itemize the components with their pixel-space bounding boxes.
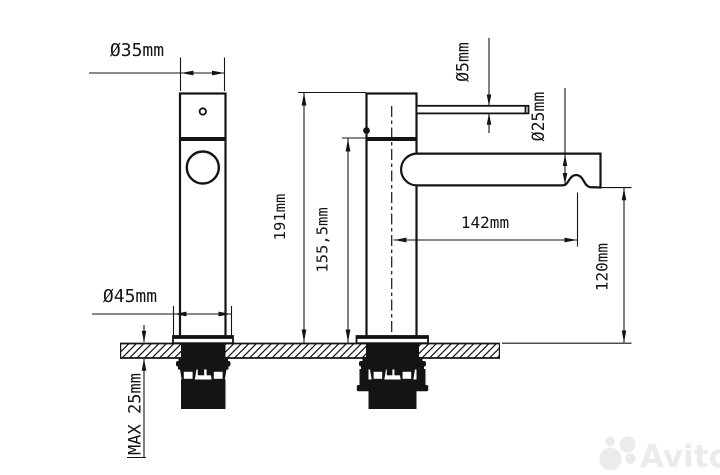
side-stud-left <box>360 369 369 387</box>
background <box>0 0 720 475</box>
front-threaded-block <box>181 380 226 410</box>
label-1555: 155,5mm <box>314 207 332 272</box>
front-body <box>180 94 226 337</box>
front-nut-left-face <box>184 372 193 379</box>
label-dia5: Ø5mm <box>454 42 473 82</box>
avito-wordmark: Avito <box>640 439 720 475</box>
side-washer-top <box>363 357 423 362</box>
front-handle-circle <box>187 152 219 184</box>
label-dia45: Ø45mm <box>103 286 157 307</box>
countertop <box>120 344 500 359</box>
label-142: 142mm <box>461 213 509 232</box>
label-dia35: Ø35mm <box>110 40 164 61</box>
front-stud-left <box>198 369 204 376</box>
faucet-technical-drawing: Avito <box>0 0 720 475</box>
front-stud-right <box>207 369 213 376</box>
front-washer <box>176 361 231 367</box>
front-washer-top <box>179 357 229 362</box>
avito-circle-small-bottom <box>625 453 635 463</box>
side-stud-center-right <box>394 369 400 376</box>
side-stud-right <box>417 369 426 387</box>
side-threaded-block <box>369 380 417 410</box>
side-bracket-bar <box>361 367 424 370</box>
front-view <box>173 94 233 410</box>
front-shank <box>181 344 226 359</box>
handle-lever-rod <box>417 106 529 114</box>
countertop-hatch-left <box>120 344 181 359</box>
label-dia25: Ø25mm <box>529 92 548 142</box>
avito-circle-large <box>599 448 621 470</box>
avito-circle-small-top <box>605 437 615 447</box>
countertop-hatch-middle <box>226 344 367 359</box>
front-nut-right-face <box>214 372 223 379</box>
drawing-canvas: Avito <box>0 0 720 475</box>
label-191: 191mm <box>271 194 289 241</box>
side-nut-left-face <box>374 372 383 379</box>
side-shank <box>366 344 419 359</box>
front-pin-hole <box>200 108 206 114</box>
side-stud-center-left <box>387 369 393 376</box>
countertop-hatch-right <box>419 344 500 359</box>
side-edge-detail <box>363 127 370 134</box>
side-nut-right-face <box>403 372 412 379</box>
avito-circle-medium <box>620 437 636 453</box>
label-max25: MAX 25mm <box>126 373 146 455</box>
label-120: 120mm <box>593 243 612 291</box>
side-washer <box>359 361 426 367</box>
